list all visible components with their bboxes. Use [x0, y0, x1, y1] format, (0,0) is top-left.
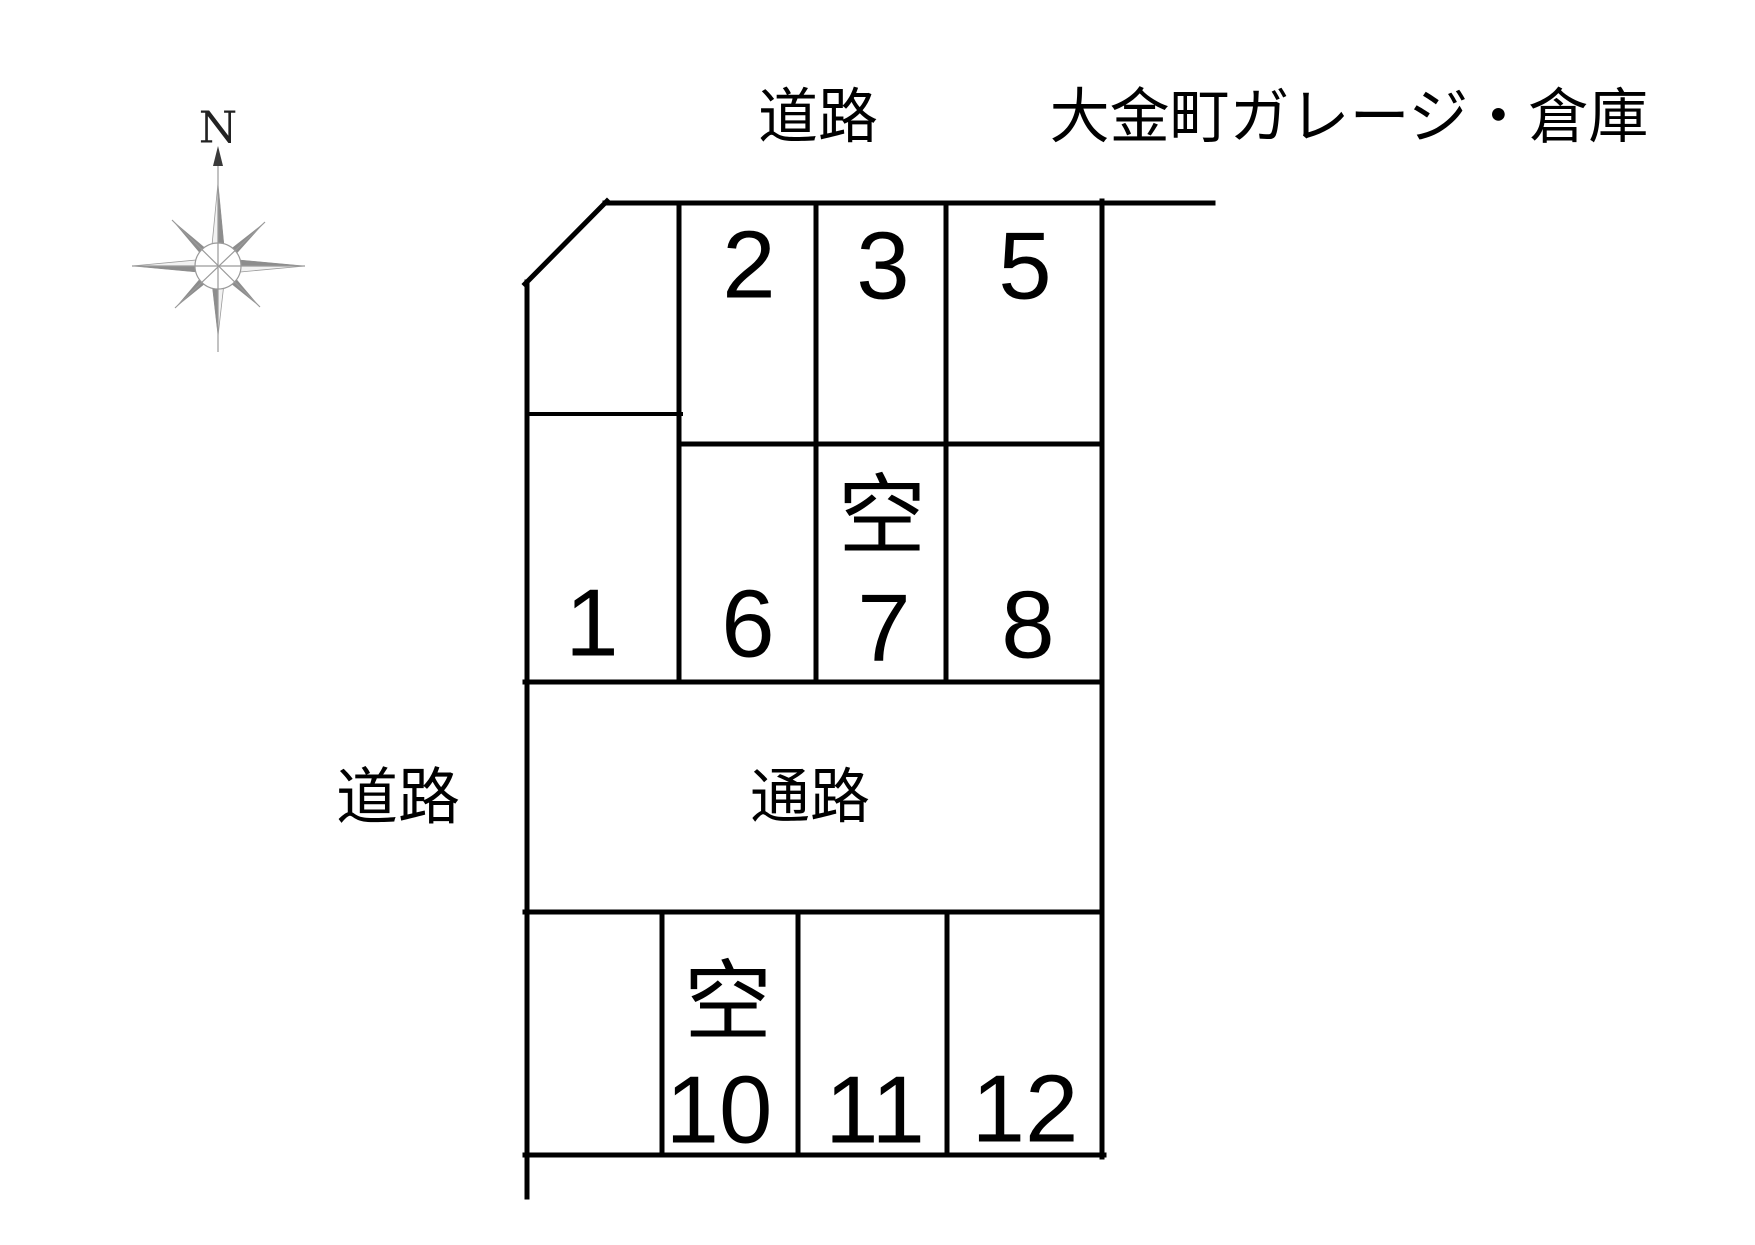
stall-number-2: 2	[722, 212, 775, 319]
stall-number-7: 7	[857, 575, 910, 682]
road-label-left: 道路	[336, 764, 460, 833]
outline-corner-diagonal	[525, 201, 607, 284]
stall-number-10: 10	[666, 1057, 773, 1164]
compass-rose: N	[132, 103, 305, 353]
stall-number-6: 6	[721, 571, 774, 678]
page-title: 大金町ガレージ・倉庫	[1050, 84, 1649, 151]
plot-outline	[525, 201, 1213, 1197]
aisle-label: 通路	[750, 764, 870, 831]
site-plan-page: 道路 大金町ガレージ・倉庫 道路	[0, 0, 1755, 1240]
partition-lines	[525, 203, 1102, 1155]
stall-number-5: 5	[998, 213, 1051, 320]
compass-north-label: N	[199, 103, 238, 154]
vacancy-markers: 空 空	[684, 467, 926, 1052]
stall-number-1: 1	[565, 570, 618, 677]
road-label-top: 道路	[758, 84, 878, 151]
stall-number-11: 11	[825, 1057, 925, 1164]
stall-number-12: 12	[972, 1056, 1079, 1163]
site-plan-drawing: 道路 大金町ガレージ・倉庫 道路	[0, 0, 1755, 1240]
vacant-marker-stall-7: 空	[838, 467, 926, 566]
vacant-marker-stall-10: 空	[684, 953, 772, 1052]
stall-numbers: 2 3 5 1 6 7 8 10 11 12	[565, 212, 1078, 1164]
stall-number-8: 8	[1001, 572, 1054, 679]
stall-number-3: 3	[856, 213, 909, 320]
